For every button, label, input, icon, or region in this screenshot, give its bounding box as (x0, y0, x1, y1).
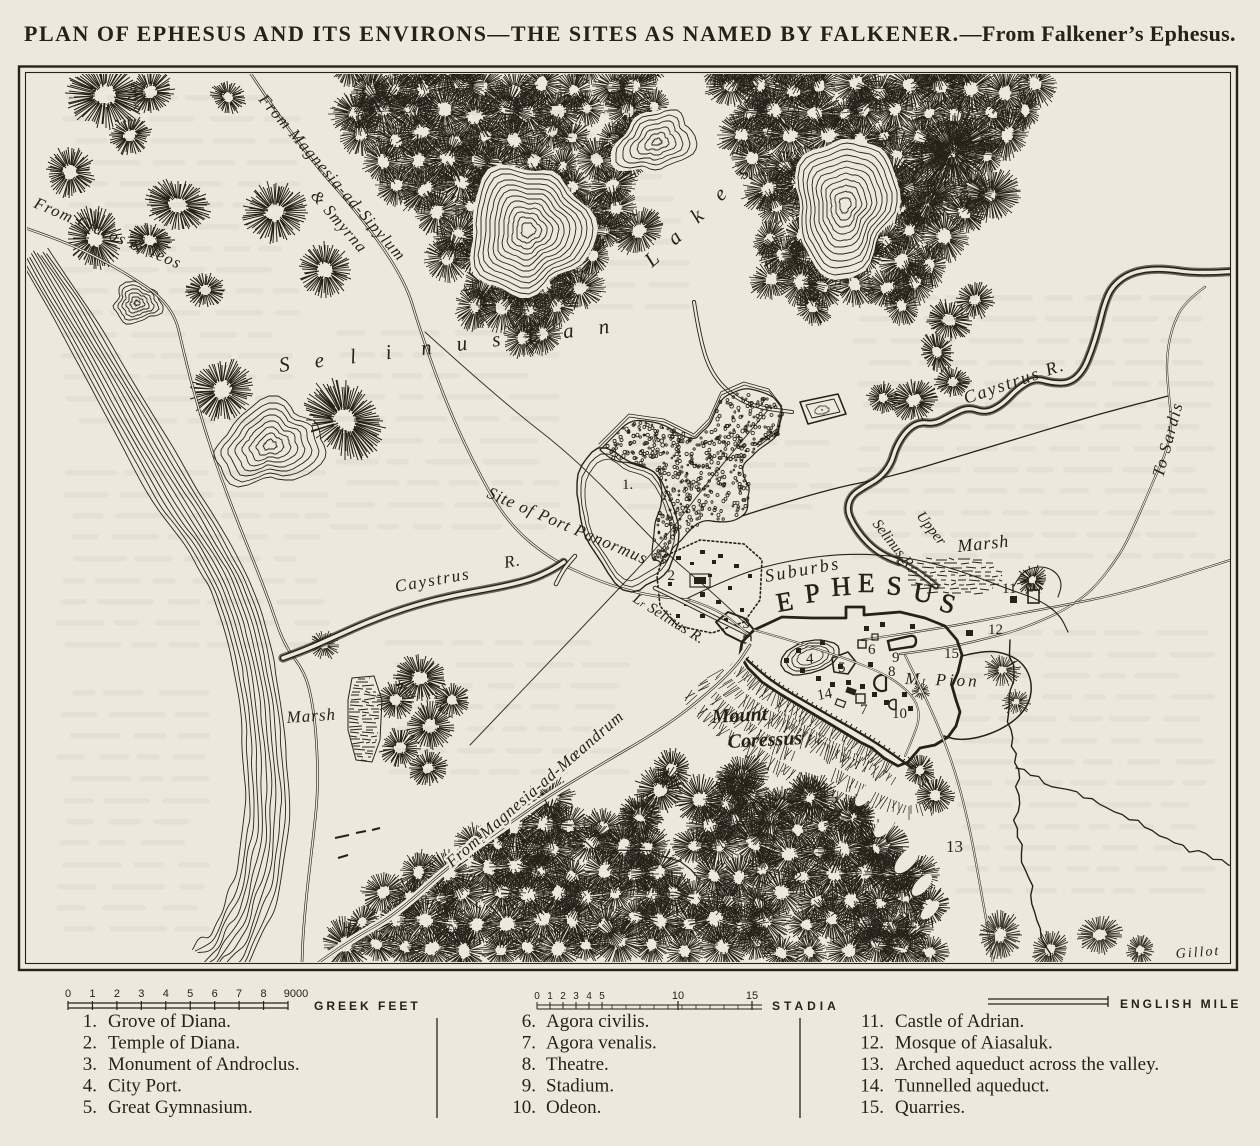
svg-text:City Port.: City Port. (108, 1076, 182, 1097)
svg-text:4.: 4. (83, 1076, 97, 1097)
svg-text:3: 3 (573, 991, 579, 1002)
svg-text:10.: 10. (512, 1097, 536, 1118)
svg-text:5: 5 (599, 991, 605, 1002)
svg-text:6: 6 (212, 988, 218, 1000)
svg-text:STADIA: STADIA (772, 999, 840, 1013)
svg-text:8.: 8. (522, 1054, 536, 1075)
svg-text:1.: 1. (83, 1011, 97, 1032)
svg-text:Mt Pion: Mt Pion (904, 669, 980, 691)
svg-text:GREEK FEET: GREEK FEET (314, 999, 421, 1013)
svg-text:4: 4 (586, 991, 592, 1002)
svg-text:7: 7 (860, 702, 868, 718)
svg-text:10: 10 (672, 990, 684, 1002)
svg-text:7: 7 (236, 988, 242, 1000)
svg-text:13.: 13. (860, 1054, 884, 1075)
svg-text:12.: 12. (860, 1033, 884, 1054)
svg-text:Quarries.: Quarries. (895, 1097, 965, 1118)
svg-text:Mount: Mount (710, 703, 769, 728)
svg-text:8: 8 (261, 988, 267, 1000)
svg-text:Odeon.: Odeon. (546, 1097, 601, 1118)
svg-text:Arched aqueduct across the val: Arched aqueduct across the valley. (895, 1054, 1159, 1075)
svg-text:PLAN OF EPHESUS AND ITS ENVIRO: PLAN OF EPHESUS AND ITS ENVIRONS—THE SIT… (24, 21, 1236, 46)
svg-text:11: 11 (1002, 581, 1016, 597)
svg-text:11.: 11. (861, 1011, 884, 1032)
svg-text:Agora civilis.: Agora civilis. (546, 1011, 649, 1032)
svg-text:Stadium.: Stadium. (546, 1076, 614, 1097)
svg-text:S: S (885, 570, 903, 601)
svg-text:3: 3 (138, 988, 144, 1000)
svg-text:Temple of Diana.: Temple of Diana. (108, 1033, 240, 1054)
svg-text:4: 4 (163, 988, 169, 1000)
svg-text:Gillot: Gillot (1175, 944, 1221, 962)
svg-text:1: 1 (547, 991, 553, 1002)
svg-text:2: 2 (560, 991, 566, 1002)
svg-text:4: 4 (806, 651, 814, 667)
svg-text:15.: 15. (860, 1097, 884, 1118)
svg-text:3.: 3. (83, 1054, 97, 1075)
svg-text:6.: 6. (522, 1011, 536, 1032)
svg-text:2: 2 (114, 988, 120, 1000)
svg-text:Monument of Androclus.: Monument of Androclus. (108, 1054, 300, 1075)
svg-text:13: 13 (946, 837, 963, 856)
svg-text:12: 12 (988, 622, 1003, 638)
svg-text:Agora venalis.: Agora venalis. (546, 1033, 657, 1054)
svg-text:1: 1 (89, 988, 95, 1000)
svg-text:E: E (858, 568, 875, 598)
svg-text:9000: 9000 (284, 988, 308, 1000)
svg-text:15: 15 (746, 990, 758, 1002)
svg-text:2.: 2. (83, 1033, 97, 1054)
svg-text:Grove of Diana.: Grove of Diana. (108, 1011, 231, 1032)
svg-text:Tunnelled aqueduct.: Tunnelled aqueduct. (895, 1076, 1049, 1097)
svg-text:15: 15 (944, 646, 959, 662)
svg-text:14.: 14. (860, 1076, 884, 1097)
svg-text:0: 0 (534, 991, 540, 1002)
svg-text:H: H (830, 571, 852, 602)
svg-text:5: 5 (187, 988, 193, 1000)
svg-text:Marsh: Marsh (285, 705, 337, 727)
svg-text:6: 6 (868, 642, 876, 658)
svg-text:Coressus: Coressus (727, 727, 803, 753)
svg-text:Mosque of Aiasaluk.: Mosque of Aiasaluk. (895, 1033, 1053, 1054)
svg-text:Theatre.: Theatre. (546, 1054, 609, 1075)
svg-text:0: 0 (65, 988, 71, 1000)
svg-text:10: 10 (892, 706, 907, 722)
svg-text:1.: 1. (622, 477, 633, 493)
svg-text:Castle of Adrian.: Castle of Adrian. (895, 1011, 1024, 1032)
svg-text:7.: 7. (522, 1033, 536, 1054)
svg-text:2: 2 (668, 568, 676, 584)
svg-text:ENGLISH MILE: ENGLISH MILE (1120, 997, 1241, 1011)
svg-text:R.: R. (501, 550, 522, 572)
svg-text:5.: 5. (83, 1097, 97, 1118)
svg-text:Great Gymnasium.: Great Gymnasium. (108, 1097, 253, 1118)
svg-text:9.: 9. (522, 1076, 536, 1097)
